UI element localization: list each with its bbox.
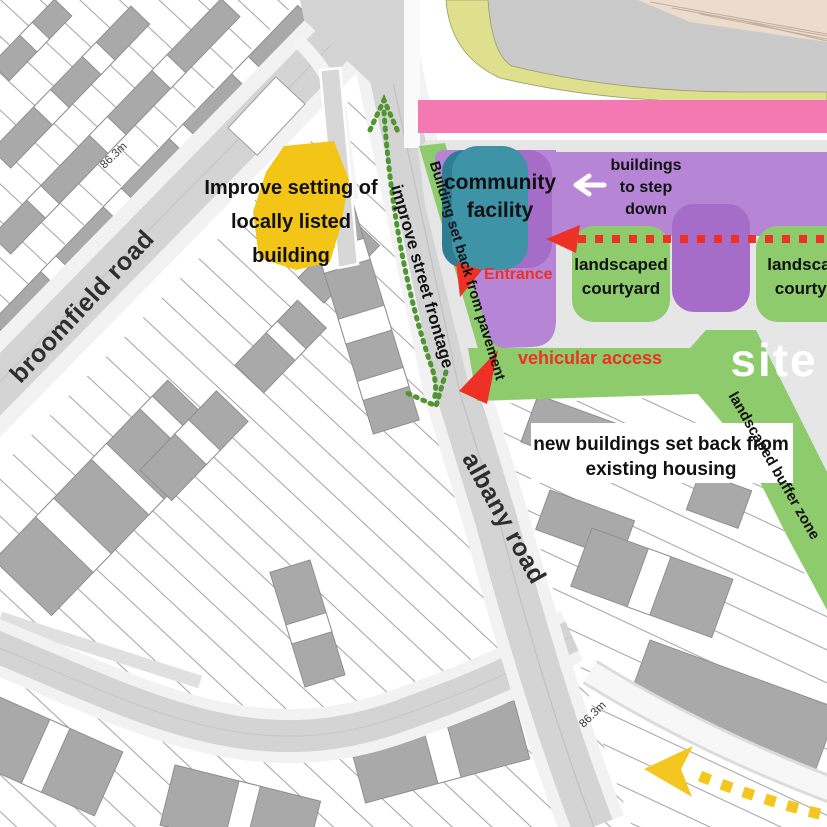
svg-text:courtyard: courtyard bbox=[775, 279, 827, 298]
site-plan-map: broomfield road albany road 86.3m 86.3m … bbox=[0, 0, 827, 827]
east-pavement-strip bbox=[404, 0, 420, 148]
svg-text:building: building bbox=[252, 245, 330, 267]
svg-text:facility: facility bbox=[467, 199, 534, 222]
svg-text:locally listed: locally listed bbox=[231, 211, 351, 233]
plan-canvas: broomfield road albany road 86.3m 86.3m … bbox=[0, 0, 827, 827]
site-label: site bbox=[730, 334, 817, 386]
pink-band bbox=[418, 100, 827, 133]
svg-text:landscaped: landscaped bbox=[767, 255, 827, 274]
svg-text:community: community bbox=[444, 171, 556, 194]
svg-text:existing housing: existing housing bbox=[586, 459, 737, 480]
svg-text:courtyard: courtyard bbox=[582, 279, 660, 298]
proposed-building-block bbox=[672, 204, 750, 312]
svg-text:to step: to step bbox=[620, 179, 673, 196]
entrance-label: Entrance bbox=[484, 266, 553, 283]
svg-text:down: down bbox=[625, 201, 667, 218]
svg-text:buildings: buildings bbox=[610, 157, 681, 174]
svg-text:landscaped: landscaped bbox=[574, 255, 668, 274]
courtyard-1-shape bbox=[572, 226, 670, 322]
svg-text:new buildings set back from: new buildings set back from bbox=[533, 434, 789, 455]
svg-text:Improve setting of: Improve setting of bbox=[204, 177, 378, 199]
vehicular-access-label: vehicular access bbox=[518, 348, 662, 368]
